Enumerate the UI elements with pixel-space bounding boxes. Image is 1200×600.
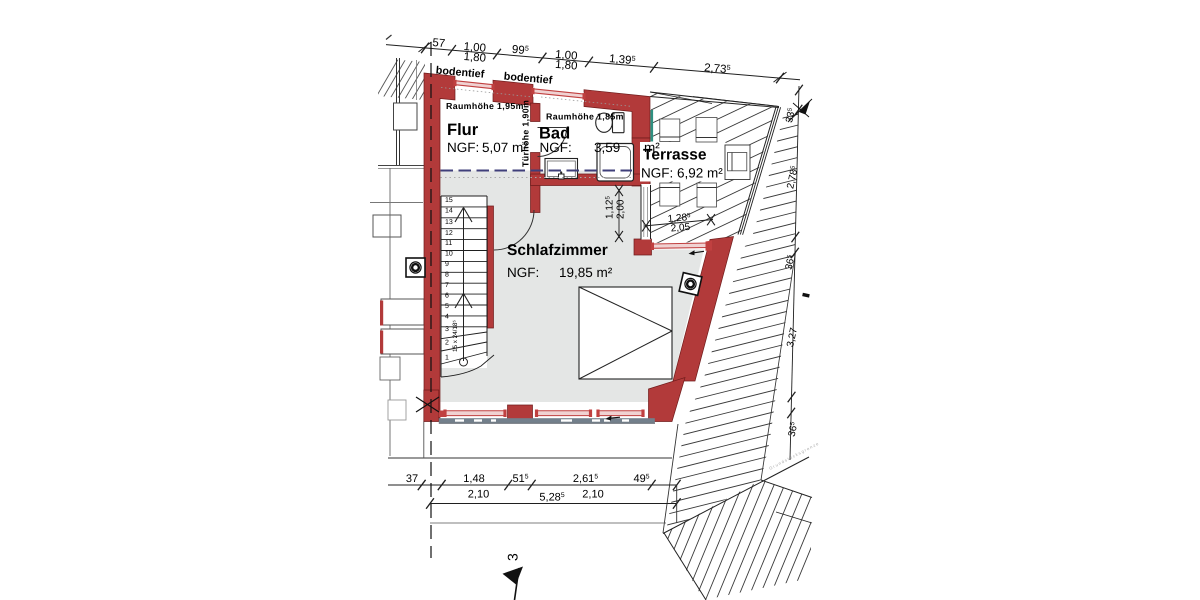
svg-text:2: 2 (445, 340, 449, 347)
svg-text:6: 6 (445, 293, 449, 300)
svg-text:3: 3 (505, 553, 521, 561)
svg-text:14: 14 (445, 208, 453, 215)
svg-text:1,80: 1,80 (463, 51, 486, 65)
svg-text:Türhöhe 1,90m: Türhöhe 1,90m (521, 100, 531, 167)
svg-text:2,00: 2,00 (616, 199, 627, 219)
svg-text:NGF:: NGF: (540, 140, 572, 155)
svg-text:13: 13 (445, 219, 453, 226)
svg-text:2,05: 2,05 (670, 222, 691, 235)
svg-text:Raumhöhe 1,85m: Raumhöhe 1,85m (546, 112, 624, 122)
svg-text:1,48: 1,48 (463, 473, 484, 485)
svg-text:5: 5 (445, 303, 449, 310)
svg-text:3,59: 3,59 (594, 140, 620, 155)
svg-text:15 x 24/18⁵: 15 x 24/18⁵ (452, 320, 459, 352)
svg-text:4: 4 (445, 314, 449, 321)
svg-text:57: 57 (432, 37, 446, 50)
svg-text:2,10: 2,10 (468, 489, 489, 501)
svg-text:11: 11 (445, 240, 452, 247)
svg-text:12: 12 (445, 230, 453, 237)
svg-text:Terrasse: Terrasse (643, 147, 707, 164)
svg-text:NGF:: NGF: (447, 140, 479, 155)
svg-text:8: 8 (445, 272, 449, 279)
svg-text:7: 7 (445, 282, 449, 289)
svg-text:15: 15 (445, 197, 453, 204)
svg-text:Schlafzimmer: Schlafzimmer (507, 242, 608, 259)
svg-text:37: 37 (406, 473, 418, 485)
svg-text:1,80: 1,80 (555, 59, 578, 73)
svg-text:9: 9 (445, 261, 449, 268)
svg-text:10: 10 (445, 251, 453, 258)
svg-text:19,85 m²: 19,85 m² (559, 265, 613, 280)
svg-text:1: 1 (445, 355, 449, 362)
svg-text:NGF:: NGF: (507, 265, 539, 280)
svg-text:2,10: 2,10 (582, 489, 603, 501)
svg-text:NGF: 6,92 m²: NGF: 6,92 m² (641, 166, 723, 181)
svg-text:Raumhöhe 1,95m: Raumhöhe 1,95m (446, 101, 524, 111)
svg-text:3: 3 (445, 326, 449, 333)
svg-text:Flur: Flur (447, 121, 479, 139)
